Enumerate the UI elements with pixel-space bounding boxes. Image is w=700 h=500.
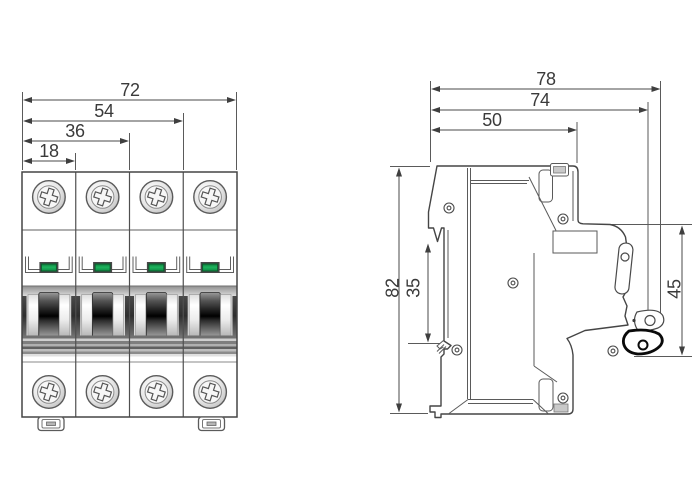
dim-label-82: 82	[382, 278, 402, 298]
green-indicator	[147, 262, 166, 273]
rivet-icon	[558, 393, 568, 403]
side-body-outline	[429, 166, 629, 418]
dim-label-18: 18	[39, 141, 59, 161]
screw-head-icon	[194, 181, 227, 214]
din-clip	[38, 417, 64, 431]
screw-head-icon	[33, 376, 66, 409]
rivet-icon	[444, 203, 454, 213]
dim-label-45: 45	[664, 279, 684, 299]
side-top-tab	[551, 164, 569, 177]
rivet-icon	[452, 345, 462, 355]
toggle-handle	[200, 293, 220, 339]
front-view: 72 54 36 18	[22, 80, 237, 431]
mcb-dimension-drawing: 72 54 36 18	[0, 0, 700, 500]
green-indicator	[201, 262, 220, 273]
toggle-handle	[39, 293, 59, 339]
dim-label-35: 35	[403, 278, 423, 298]
green-indicator	[39, 262, 58, 273]
side-view: 78 74 50 82 35 45	[382, 69, 692, 418]
side-bottom-tab	[554, 404, 568, 412]
rivet-icon	[508, 278, 518, 288]
toggle-handle	[146, 293, 166, 339]
green-indicator	[93, 262, 112, 273]
screw-head-icon	[194, 376, 227, 409]
rivet-icon	[608, 346, 618, 356]
screw-head-icon	[140, 376, 173, 409]
dim-label-54: 54	[94, 101, 114, 121]
rivet-icon	[558, 214, 568, 224]
front-body	[22, 172, 237, 431]
drawing-svg: 72 54 36 18	[0, 0, 700, 500]
screw-head-icon	[86, 181, 119, 214]
screw-head-icon	[86, 376, 119, 409]
dim-label-74: 74	[530, 90, 550, 110]
dim-label-72: 72	[120, 80, 140, 100]
screw-head-icon	[140, 181, 173, 214]
dim-label-78: 78	[536, 69, 556, 89]
dim-label-50: 50	[482, 110, 502, 130]
toggle-handle	[93, 293, 113, 339]
din-clip	[199, 417, 225, 431]
toggle-knob-hole	[639, 341, 648, 350]
screw-head-icon	[33, 181, 66, 214]
dim-label-36: 36	[65, 121, 85, 141]
